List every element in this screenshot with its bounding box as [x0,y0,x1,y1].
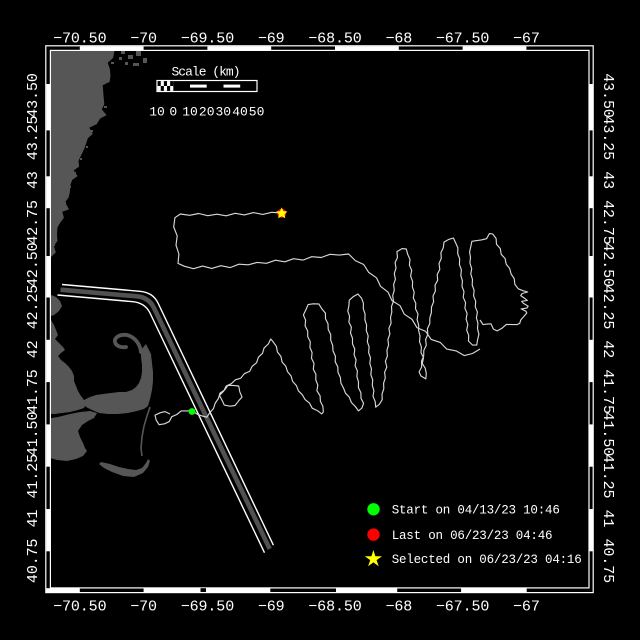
svg-text:43.50: 43.50 [599,73,616,118]
svg-text:42.75: 42.75 [599,200,616,245]
svg-text:41: 41 [599,510,616,528]
svg-text:43.25: 43.25 [25,115,42,160]
svg-text:Scale (km): Scale (km) [171,65,239,80]
svg-text:−69: −69 [258,599,285,616]
svg-text:−69.50: −69.50 [181,599,235,616]
svg-text:−70: −70 [130,599,157,616]
svg-text:−67.50: −67.50 [436,599,490,616]
svg-text:42.25: 42.25 [25,285,42,330]
svg-text:−70: −70 [130,31,157,48]
svg-text:−67: −67 [513,31,540,48]
svg-text:40.75: 40.75 [25,538,42,583]
svg-text:Start on 04/13/23 10:46: Start on 04/13/23 10:46 [392,504,560,518]
svg-text:42.25: 42.25 [599,285,616,330]
svg-text:41.75: 41.75 [25,369,42,414]
svg-text:−69.50: −69.50 [181,31,235,48]
svg-text:10: 10 [182,105,198,120]
svg-text:−68: −68 [385,31,412,48]
svg-text:42: 42 [25,340,42,358]
svg-text:−70.50: −70.50 [53,31,107,48]
svg-text:−68.50: −68.50 [308,599,362,616]
svg-text:10: 10 [149,105,165,120]
svg-text:41.50: 41.50 [599,412,616,457]
svg-text:30: 30 [215,105,231,120]
svg-text:40.75: 40.75 [599,539,616,584]
svg-text:43: 43 [25,171,42,189]
svg-text:43.25: 43.25 [599,116,616,161]
svg-text:42.75: 42.75 [25,200,42,245]
svg-text:−67: −67 [513,599,540,616]
svg-text:50: 50 [249,105,265,120]
svg-text:Last on 06/23/23 04:46: Last on 06/23/23 04:46 [392,529,553,543]
svg-text:42.50: 42.50 [25,242,42,287]
svg-text:41.25: 41.25 [599,454,616,499]
svg-text:−67.50: −67.50 [436,31,490,48]
svg-text:42.50: 42.50 [599,242,616,287]
svg-text:40: 40 [232,105,248,120]
svg-text:41: 41 [25,510,42,528]
svg-text:−68.50: −68.50 [308,31,362,48]
svg-text:20: 20 [199,105,215,120]
svg-text:Selected on 06/23/23 04:16: Selected on 06/23/23 04:16 [392,553,582,567]
svg-text:42: 42 [599,340,616,358]
svg-text:43.50: 43.50 [25,73,42,118]
svg-text:−70.50: −70.50 [53,599,107,616]
svg-text:41.75: 41.75 [599,369,616,414]
svg-text:0: 0 [169,105,177,120]
svg-text:41.25: 41.25 [25,454,42,499]
svg-text:43: 43 [599,171,616,189]
svg-text:41.50: 41.50 [25,412,42,457]
svg-text:−69: −69 [258,31,285,48]
svg-text:−68: −68 [385,599,412,616]
